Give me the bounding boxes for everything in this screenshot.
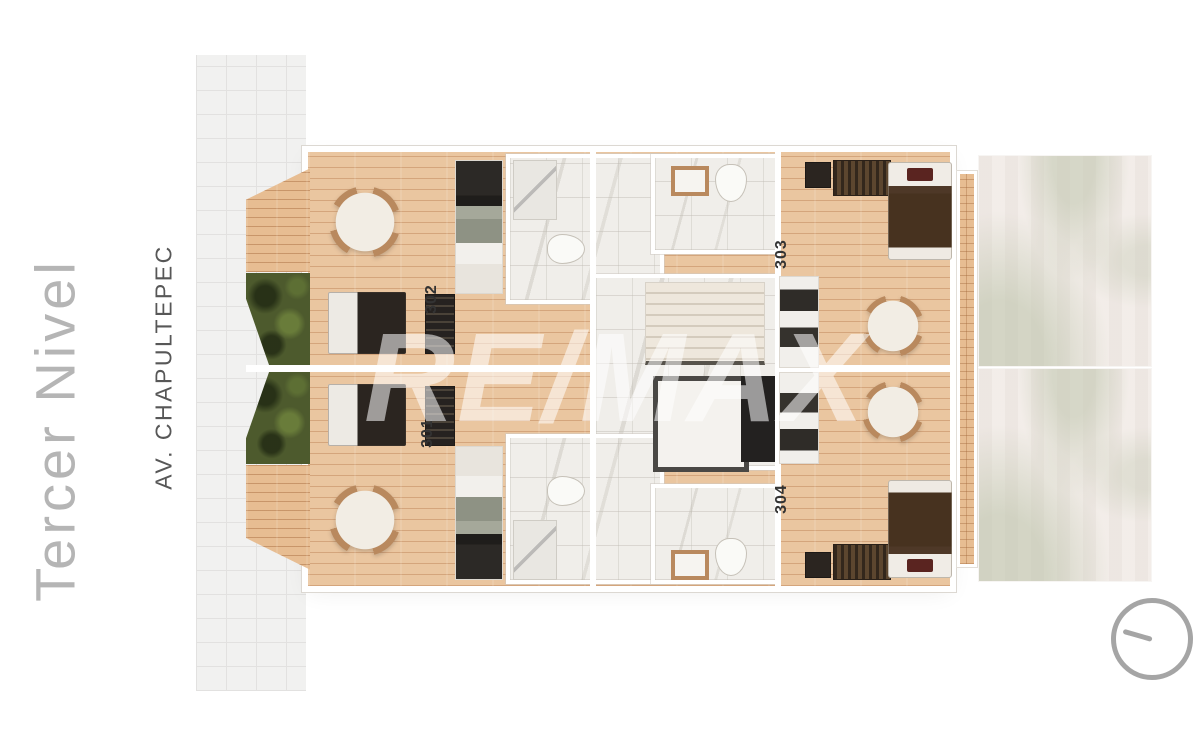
- stairs: [645, 282, 765, 365]
- unit-label-302: 302: [412, 279, 452, 319]
- bed-pillow: [907, 559, 933, 572]
- elevator-shaft: [741, 376, 775, 462]
- elevator: [653, 376, 749, 472]
- kitchen-unit-304: [779, 372, 819, 464]
- kitchen-unit-301: [455, 446, 503, 580]
- shower-unit-302: [513, 160, 557, 220]
- sofa-bed-unit-301: [328, 384, 406, 446]
- dining-table-unit-303: [862, 295, 924, 357]
- kitchen-unit-303: [779, 276, 819, 368]
- bed-unit-304: [888, 480, 952, 578]
- planter-lower: [246, 372, 310, 464]
- floor-plan-image: Tercer Nivel AV. CHAPULTEPEC: [0, 0, 1200, 749]
- mirror-unit-303: [671, 166, 709, 196]
- level-title: Tercer Nivel: [23, 258, 88, 602]
- shower-unit-301: [513, 520, 557, 580]
- cabinet-unit-303: [805, 162, 831, 188]
- balcony-divider-wall: [246, 365, 310, 372]
- street-name-label: AV. CHAPULTEPEC: [151, 244, 178, 489]
- kitchen-unit-302: [455, 160, 503, 294]
- faded-terrace-top: [978, 155, 1152, 367]
- wardrobe-unit-304: [833, 544, 891, 580]
- right-terrace-strip: [960, 174, 974, 564]
- unit-label-301: 301: [408, 413, 448, 453]
- dining-table-balcony-lower: [329, 484, 401, 556]
- corridor-wall-right: [775, 152, 781, 586]
- planter-upper: [246, 273, 310, 365]
- bed-pillow: [907, 168, 933, 181]
- mirror-unit-304: [671, 550, 709, 580]
- dining-table-unit-304: [862, 381, 924, 443]
- compass-icon: [1111, 598, 1193, 680]
- bed-unit-303: [888, 162, 952, 260]
- compass-needle: [1122, 628, 1152, 641]
- balcony-upper: [246, 164, 310, 272]
- balcony-lower: [246, 465, 310, 574]
- unit-label-303: 303: [762, 234, 802, 274]
- wardrobe-unit-303: [833, 160, 891, 196]
- party-wall-left: [308, 365, 596, 372]
- corridor-wall-left: [590, 152, 596, 586]
- floor-plan: 301 302 303 304: [245, 152, 975, 586]
- unit-label-304: 304: [762, 479, 802, 519]
- cabinet-unit-304: [805, 552, 831, 578]
- dining-table-balcony-upper: [329, 186, 401, 258]
- faded-terrace-bottom: [978, 368, 1152, 582]
- sofa-bed-unit-302: [328, 292, 406, 354]
